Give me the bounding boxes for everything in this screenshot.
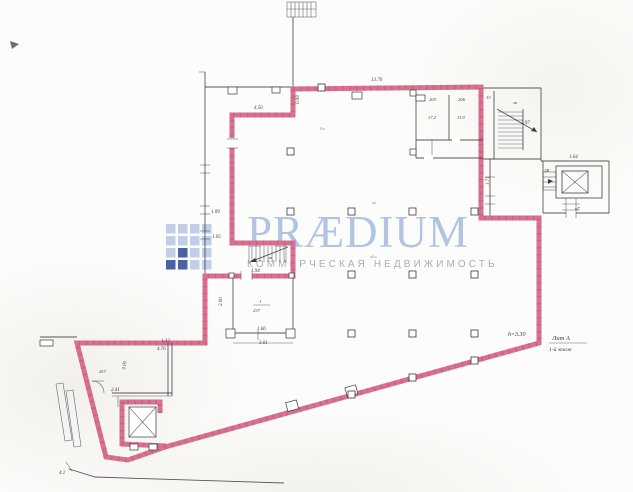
logo-square (202, 224, 212, 234)
dimension-text: 3.05 (122, 360, 129, 370)
room-label-text: вЬх (370, 254, 377, 259)
dimension-text: 2.00 (219, 297, 224, 306)
watermark-subtitle: КОММЕРЧЕСКАЯ НЕДВИЖИМОСТЬ (247, 259, 498, 270)
room-label-text: 257 (99, 369, 107, 374)
logo-square (178, 236, 188, 246)
room-label-text: 205 (429, 97, 437, 102)
dimension-text: 1.09 (211, 210, 220, 215)
room-label-text: вн (372, 200, 377, 205)
dimension-text: 13.70 (371, 78, 383, 83)
scan-artifact (10, 41, 19, 49)
logo-square (178, 260, 188, 270)
dimension-text: 2.97 (521, 121, 530, 126)
room-label-text: лк (512, 100, 518, 105)
dimension-text: 1.64 (569, 155, 578, 160)
dimension-text: 4.1 (59, 471, 65, 476)
dimension-text: 1.32 (161, 339, 170, 344)
roof-ladder-icon (287, 2, 316, 17)
logo-square (166, 224, 176, 234)
scanned-floor-plan-page: PRÆDIUM КОММЕРЧЕСКАЯ НЕДВИЖИМОСТЬ (0, 0, 633, 492)
logo-square (202, 260, 212, 270)
room-label-text: 8м (320, 126, 325, 131)
room-label-text: 2В (544, 168, 549, 173)
ceiling-height-note: h=3.30 (508, 332, 526, 338)
dimension-text: 3.01 (259, 341, 268, 346)
logo-square (190, 236, 200, 246)
dimension-text: 4.76 (157, 347, 166, 352)
floor-plan-drawing: PRÆDIUM КОММЕРЧЕСКАЯ НЕДВИЖИМОСТЬ (0, 0, 633, 492)
room-label-text: лк (267, 255, 273, 260)
watermark-wordmark: PRÆDIUM (247, 207, 469, 257)
dimension-text: 2.41 (111, 388, 120, 393)
dimension-text: 1.66 (257, 327, 266, 332)
room-label-text: 17.2 (428, 115, 437, 120)
logo-square (190, 248, 200, 258)
dimension-text: 1.94 (251, 269, 260, 274)
premises-highlight-outline (77, 87, 539, 460)
logo-square (190, 224, 200, 234)
logo-square (166, 236, 176, 246)
dimension-text: 0.98 (296, 95, 301, 104)
room-label-text: 1 (259, 299, 261, 304)
room-label-text: 13 (486, 95, 491, 100)
dimension-text: 1.05 (212, 235, 221, 240)
logo-square (202, 236, 212, 246)
logo-square (190, 260, 200, 270)
room-label-text: кГ (575, 206, 580, 211)
dimension-text: 1.71 (486, 176, 491, 185)
logo-square (166, 248, 176, 258)
floor-note: 1-й этаж (549, 346, 573, 353)
logo-square (202, 248, 212, 258)
room-label-text: 237 (253, 308, 261, 313)
logo-square (178, 248, 188, 258)
logo-square (178, 224, 188, 234)
room-237 (226, 273, 295, 343)
logo-square (166, 260, 176, 270)
staircase-top-right (497, 109, 537, 150)
room-lower-left (92, 343, 172, 407)
dimension-text: 4.50 (254, 106, 263, 111)
room-label-text: 11.9 (457, 115, 465, 120)
room-label-text: 206 (458, 97, 466, 102)
liter-note: Лит А (551, 335, 570, 342)
